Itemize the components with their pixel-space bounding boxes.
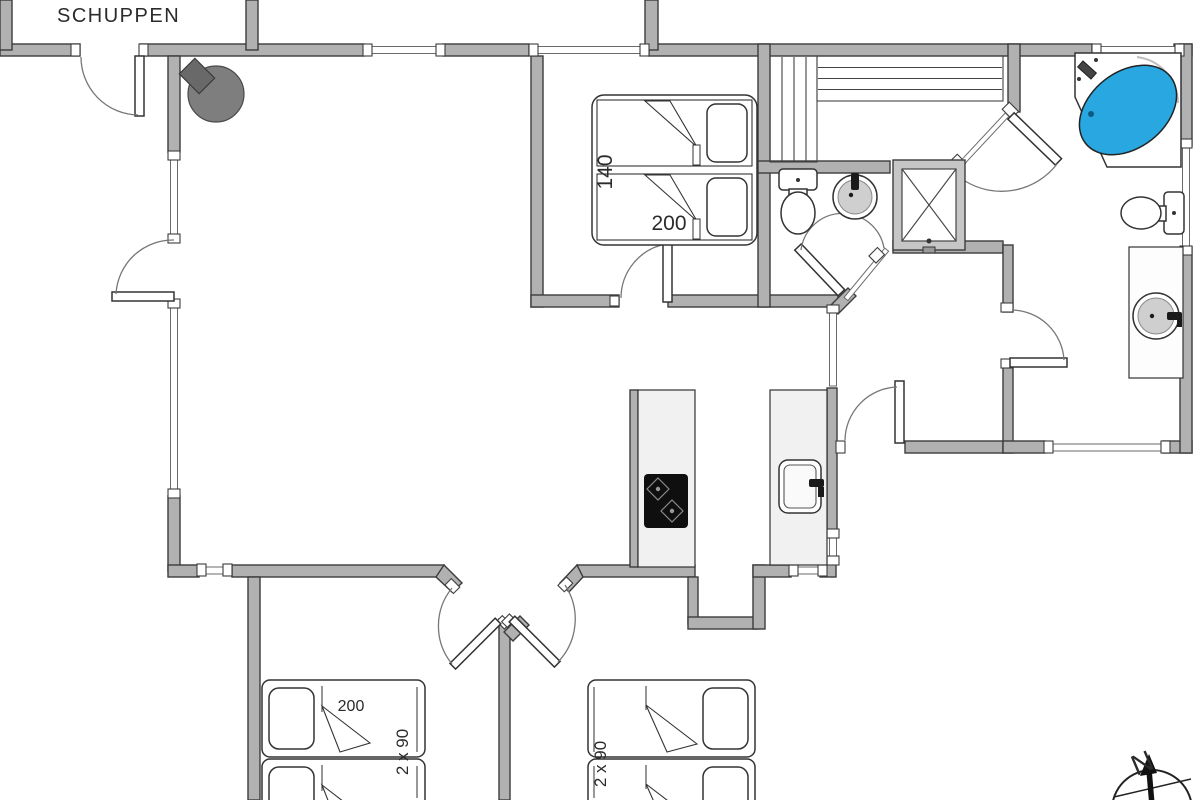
wood-stove — [179, 58, 244, 122]
corner-bathtub — [1062, 47, 1194, 173]
round-washbasin — [833, 173, 877, 219]
vanity-washbasin — [1129, 247, 1183, 378]
toilet — [779, 169, 817, 234]
twin-beds-middle: 2 x 90 — [588, 680, 755, 800]
shed-label: SCHUPPEN — [57, 5, 180, 27]
toilet-2 — [1121, 192, 1184, 234]
double-bed: 140 200 — [592, 95, 757, 245]
pillow — [703, 688, 748, 749]
twin-middle-size-label: 2 x 90 — [591, 741, 610, 787]
floor-plan-canvas: 140 200 200 2 x 90 2 x 90 SCHUPPEN — [0, 0, 1200, 800]
bathroom2-door — [1001, 303, 1067, 368]
kitchen-counter-hob — [638, 390, 695, 567]
pillow — [707, 104, 747, 162]
twin-left-size-label: 2 x 90 — [393, 729, 412, 775]
twin-left-length-label: 200 — [338, 698, 365, 715]
pillow — [269, 767, 314, 800]
terrace-door — [112, 240, 174, 301]
pillow — [269, 688, 314, 749]
shower-cabin — [893, 160, 965, 253]
kitchen-counter-sink — [770, 390, 827, 565]
bed-length-label: 200 — [651, 212, 686, 235]
sauna-door — [950, 102, 1061, 191]
hall-door — [836, 381, 904, 453]
twin-beds-left: 200 2 x 90 — [262, 680, 425, 800]
floor-plan: 140 200 200 2 x 90 2 x 90 SCHUPPEN — [0, 0, 1200, 800]
kitchen-hob — [644, 474, 688, 528]
bed-width-label: 140 — [594, 154, 617, 189]
bedroom1-door — [610, 240, 672, 306]
shed-door — [71, 44, 148, 116]
pillow — [707, 178, 747, 236]
sauna-benches — [770, 56, 1003, 162]
compass-rose: N — [1112, 745, 1192, 800]
pillow — [703, 767, 748, 800]
bedroom3-door — [502, 577, 576, 667]
